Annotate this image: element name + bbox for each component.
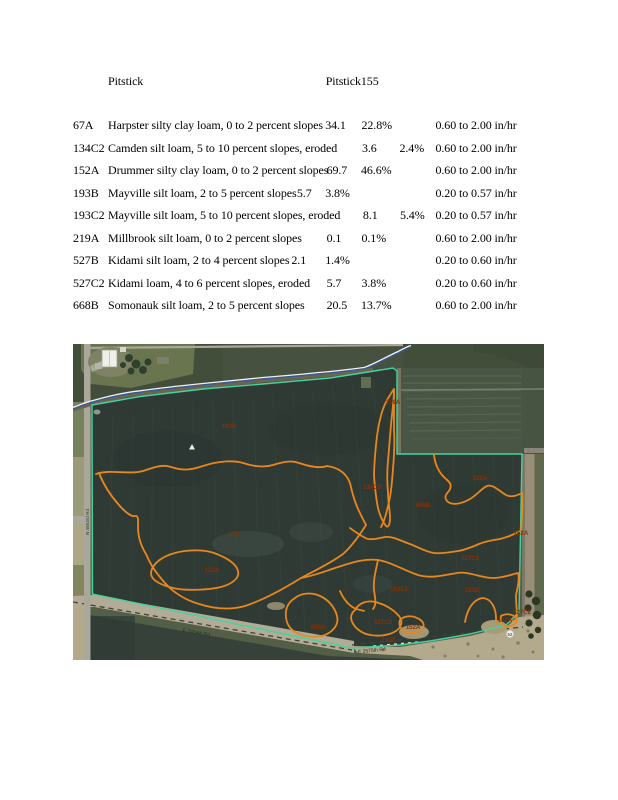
- svg-text:527C2: 527C2: [461, 556, 479, 562]
- svg-text:152A: 152A: [514, 531, 529, 537]
- svg-text:152A: 152A: [406, 625, 421, 631]
- svg-text:527C2: 527C2: [513, 610, 531, 616]
- svg-text:668B: 668B: [311, 625, 326, 631]
- svg-text:527C2: 527C2: [374, 620, 392, 626]
- svg-text:152A: 152A: [473, 476, 488, 482]
- svg-text:219A: 219A: [386, 400, 401, 406]
- svg-text:668B: 668B: [416, 503, 431, 509]
- svg-text:152A: 152A: [498, 618, 513, 624]
- svg-text:152A: 152A: [205, 568, 220, 574]
- svg-text:193C2: 193C2: [390, 587, 408, 593]
- svg-text:193B: 193B: [465, 588, 480, 594]
- svg-text:52: 52: [508, 632, 513, 637]
- svg-text:134C2: 134C2: [363, 485, 381, 491]
- svg-text:67A: 67A: [228, 532, 240, 538]
- svg-text:193A: 193A: [382, 638, 397, 644]
- svg-text:N 4853rd Rd: N 4853rd Rd: [85, 509, 90, 535]
- svg-text:193B: 193B: [222, 424, 237, 430]
